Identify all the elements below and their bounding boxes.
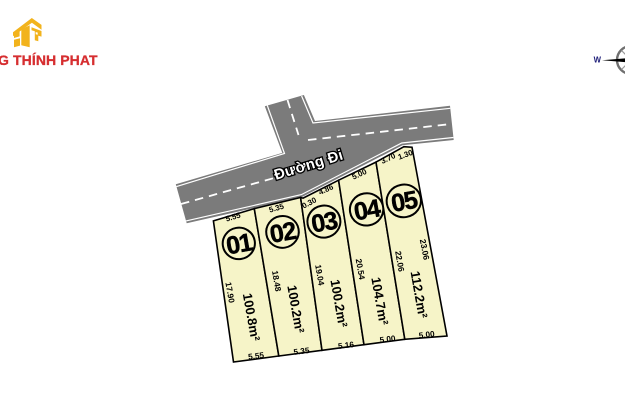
svg-text:5.35: 5.35 [293, 346, 310, 357]
svg-text:02: 02 [268, 217, 298, 249]
svg-text:5.16: 5.16 [338, 340, 355, 351]
svg-text:G THÍNH PHAT: G THÍNH PHAT [0, 52, 98, 68]
svg-text:5.55: 5.55 [248, 351, 265, 362]
svg-text:W: W [594, 56, 602, 65]
svg-text:5.00: 5.00 [418, 329, 435, 340]
svg-text:03: 03 [309, 207, 339, 239]
svg-text:5.00: 5.00 [379, 334, 396, 345]
